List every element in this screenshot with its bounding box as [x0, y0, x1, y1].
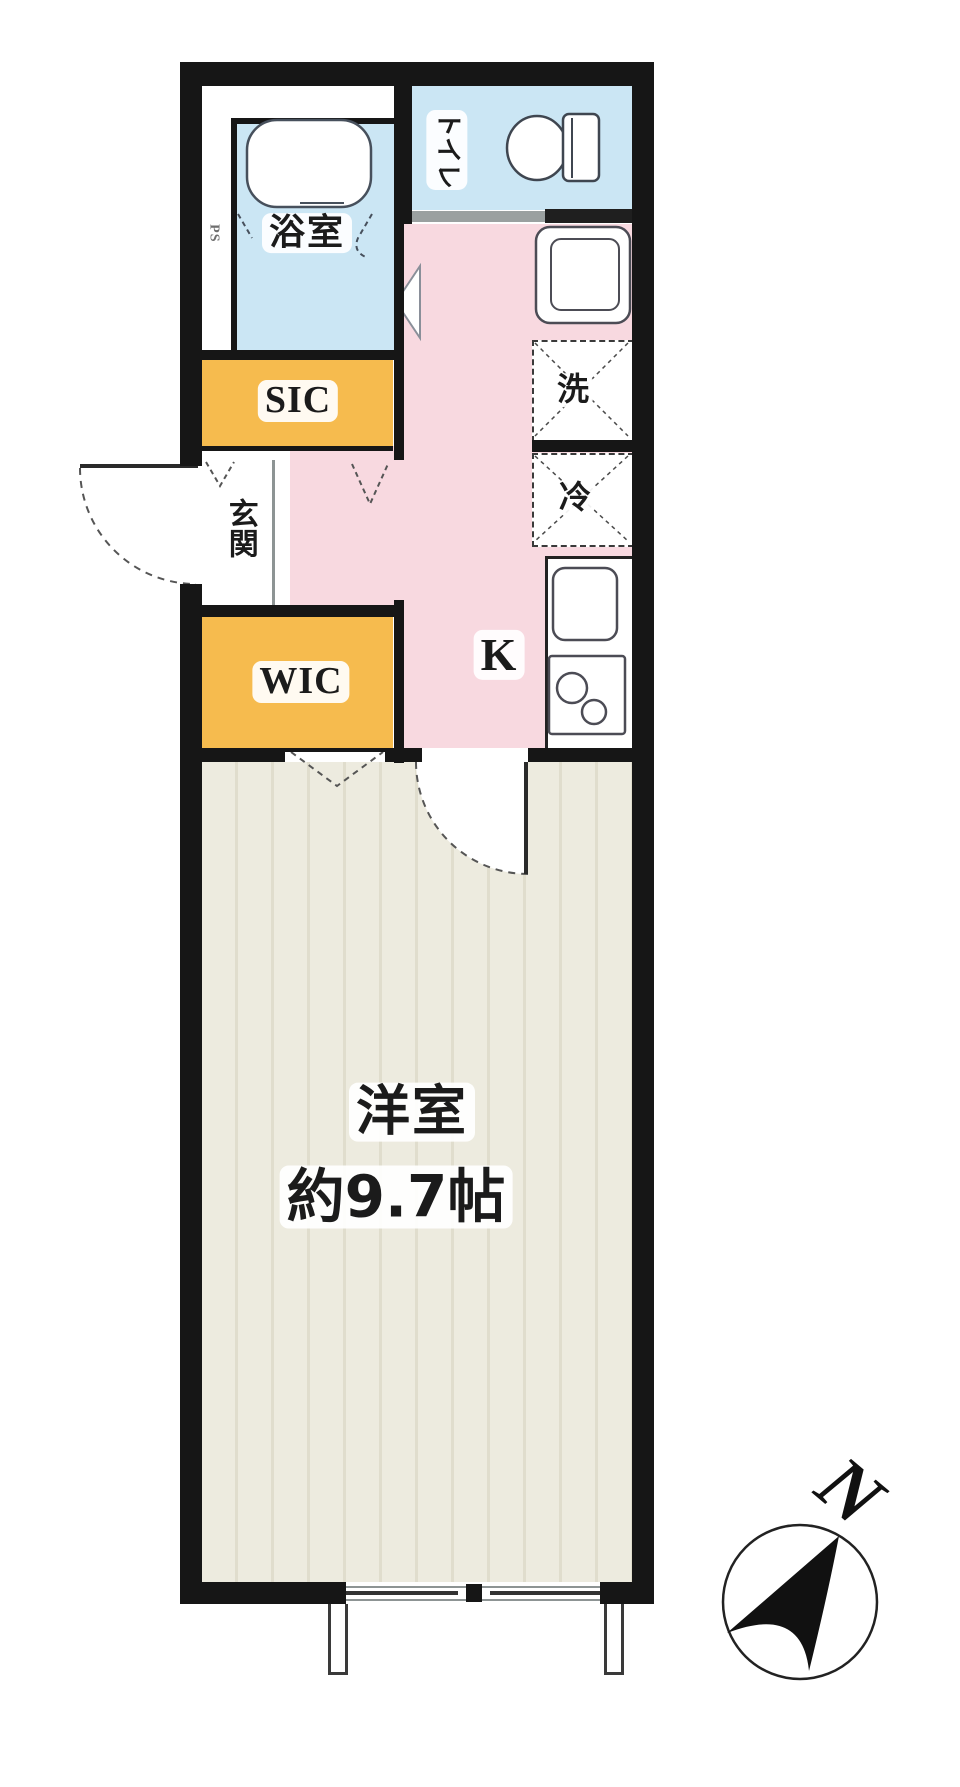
wall-right	[632, 62, 654, 1604]
window-left-sash	[346, 1591, 458, 1595]
window-right-sash	[490, 1591, 600, 1595]
wall-hall-left-lower	[394, 600, 404, 763]
wall-wic-opening-line	[285, 748, 385, 752]
wall-bottom-left	[180, 1582, 346, 1604]
wic-label: WIC	[252, 661, 349, 703]
compass-circle	[723, 1525, 877, 1679]
wall-toilet-left	[394, 86, 412, 224]
wall-left-upper	[180, 62, 202, 466]
toilet-label: トイレ	[426, 110, 467, 190]
kitchen-counter	[545, 556, 635, 751]
entrance-label: 玄関	[217, 497, 263, 559]
hall-extension	[290, 446, 404, 605]
sic-label: SIC	[258, 380, 338, 422]
washer-label: 洗	[555, 373, 593, 407]
wall-sic-bottom	[202, 446, 393, 451]
railing-post-left	[328, 1604, 348, 1675]
wall-room-top-right	[528, 748, 632, 762]
wall-top	[180, 62, 654, 86]
compass-north-label: N	[802, 1441, 898, 1540]
pipe-space-label: PS	[206, 224, 221, 242]
bathroom-label: 浴室	[262, 213, 352, 253]
wall-wic-top	[202, 605, 404, 617]
washer-fridge-divider-wall	[532, 440, 632, 452]
wall-room-top-mid	[385, 748, 422, 762]
railing-post-right	[604, 1604, 624, 1675]
kitchen-label: K	[474, 630, 525, 680]
wall-hall-left-upper	[394, 224, 404, 460]
compass-needle	[727, 1536, 839, 1671]
entrance-door-swing-arc	[80, 468, 196, 584]
wall-room-top-left	[180, 748, 285, 762]
fridge-label: 冷	[557, 481, 595, 515]
wall-bathroom-sic-divider	[202, 350, 404, 360]
western-room-size-label: 約9.7帖	[280, 1166, 513, 1229]
toilet-sliding-door-dark	[545, 209, 632, 223]
entrance-step-line	[272, 460, 275, 605]
window-divider	[466, 1584, 482, 1602]
wall-bottom-right	[600, 1582, 654, 1604]
western-room-label: 洋室	[349, 1083, 475, 1142]
wall-left-lower	[180, 584, 202, 1604]
floor-plan: 浴室 トイレ PS SIC 玄関 WIC K 洗 冷 洋室 約9.7帖 N	[0, 0, 960, 1787]
